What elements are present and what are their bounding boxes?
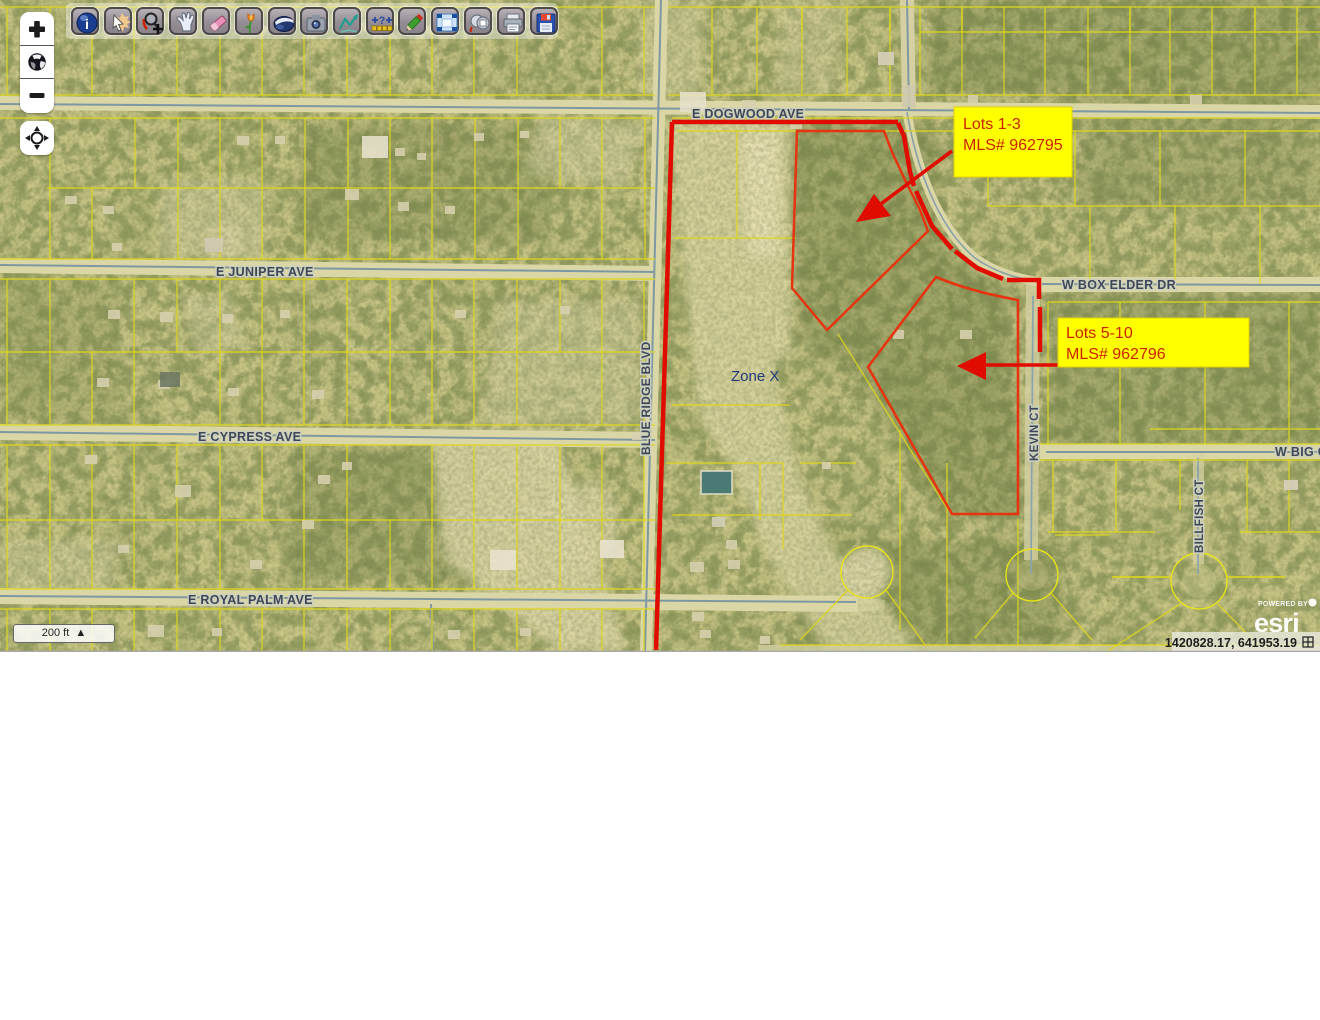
svg-text:BLUE RIDGE BLVD: BLUE RIDGE BLVD [639, 341, 653, 455]
svg-text:E JUNIPER AVE: E JUNIPER AVE [216, 265, 314, 279]
svg-text:i: i [85, 16, 89, 32]
svg-text:?: ? [379, 15, 386, 27]
svg-text:W BIG C: W BIG C [1275, 445, 1320, 459]
svg-text:E DOGWOOD AVE: E DOGWOOD AVE [692, 107, 804, 121]
svg-text:MLS# 962795: MLS# 962795 [963, 137, 1063, 154]
svg-text:MLS# 962796: MLS# 962796 [1066, 346, 1166, 363]
svg-text:Zone X: Zone X [731, 368, 779, 385]
svg-text:BILLFISH CT: BILLFISH CT [1194, 479, 1206, 553]
svg-text:E ROYAL PALM AVE: E ROYAL PALM AVE [188, 593, 313, 607]
svg-text:Lots 5-10: Lots 5-10 [1066, 325, 1133, 342]
svg-text:W BOX ELDER DR: W BOX ELDER DR [1062, 278, 1176, 292]
svg-text:KEVIN CT: KEVIN CT [1029, 405, 1041, 461]
svg-text:1420828.17, 641953.19: 1420828.17, 641953.19 [1165, 636, 1297, 650]
svg-text:POWERED BY: POWERED BY [1258, 601, 1308, 608]
svg-text:Lots 1-3: Lots 1-3 [963, 116, 1021, 133]
svg-text:E CYPRESS AVE: E CYPRESS AVE [198, 430, 301, 444]
